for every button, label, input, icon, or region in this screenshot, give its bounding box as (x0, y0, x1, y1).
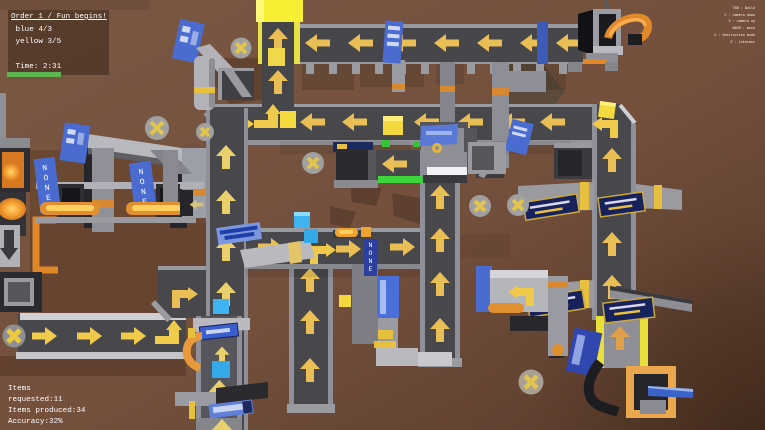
svg-text:E: E (369, 266, 373, 273)
svg-text:N: N (369, 242, 373, 249)
svg-text:N: N (369, 258, 373, 265)
svg-text:O: O (369, 250, 373, 257)
